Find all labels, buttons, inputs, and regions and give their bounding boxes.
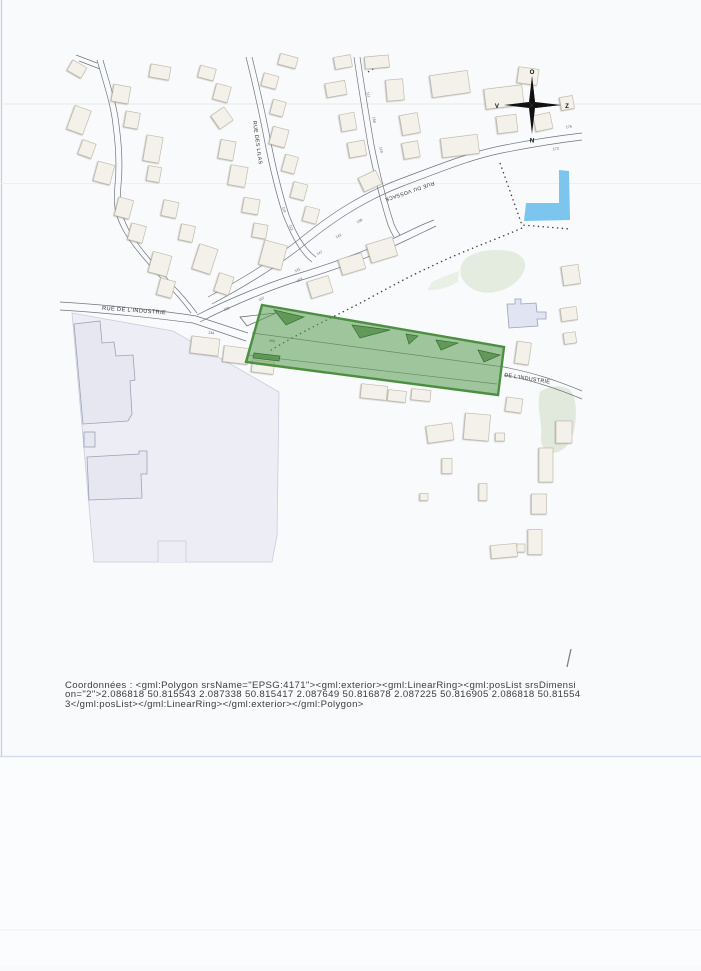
svg-text:O: O	[530, 69, 535, 76]
svg-text:Z: Z	[565, 103, 569, 110]
svg-text:173: 173	[553, 147, 559, 152]
svg-text:260: 260	[269, 339, 275, 344]
svg-text:134: 134	[208, 331, 214, 336]
svg-text:176: 176	[566, 125, 572, 130]
svg-text:N: N	[530, 138, 535, 145]
